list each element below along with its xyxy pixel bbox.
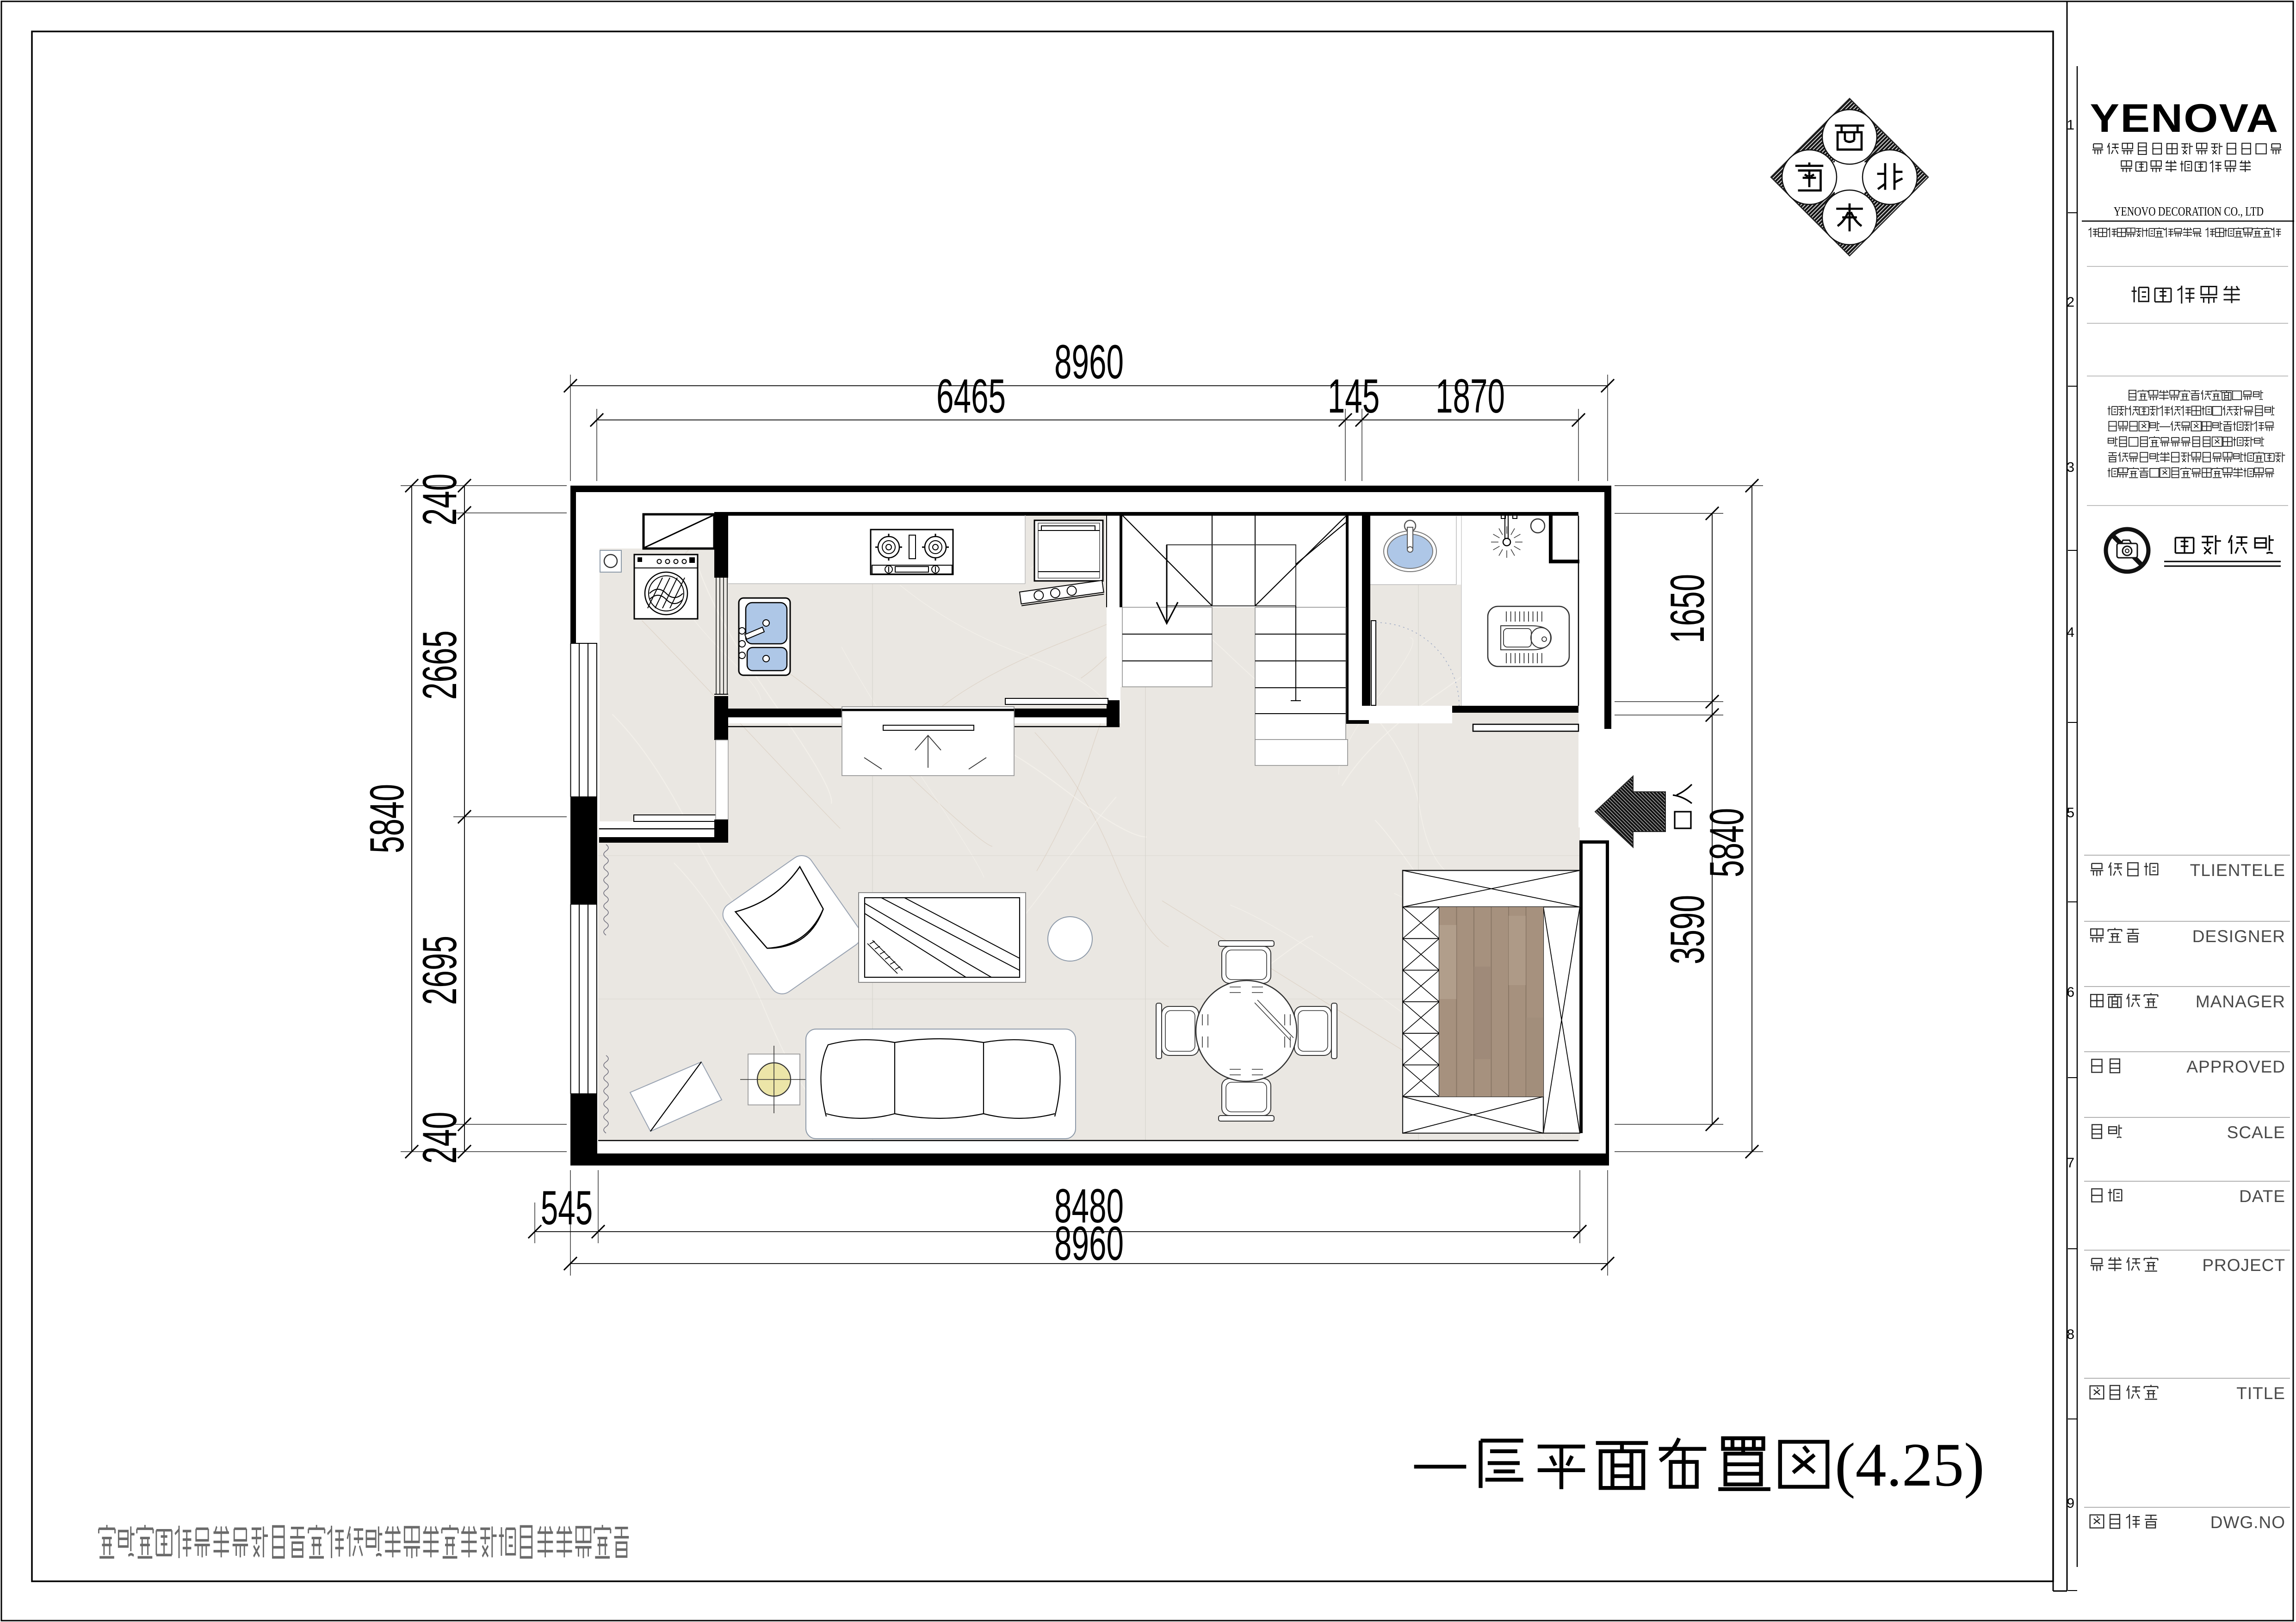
svg-text:6: 6 bbox=[2067, 985, 2074, 1000]
svg-text:PROJECT: PROJECT bbox=[2202, 1256, 2285, 1275]
svg-text:5840: 5840 bbox=[360, 784, 414, 853]
svg-text:5840: 5840 bbox=[1700, 808, 1754, 877]
svg-text:1: 1 bbox=[2067, 117, 2074, 133]
svg-text:240: 240 bbox=[413, 474, 467, 526]
svg-text:(4.25): (4.25) bbox=[1835, 1431, 1985, 1499]
svg-text:6465: 6465 bbox=[936, 370, 1006, 423]
svg-text:2: 2 bbox=[2067, 295, 2074, 310]
svg-text:9: 9 bbox=[2067, 1496, 2074, 1511]
svg-text:8960: 8960 bbox=[1054, 1217, 1124, 1270]
svg-text:5: 5 bbox=[2067, 805, 2074, 820]
svg-text:545: 545 bbox=[541, 1181, 593, 1235]
svg-text:MANAGER: MANAGER bbox=[2196, 992, 2285, 1011]
svg-text:1650: 1650 bbox=[1661, 574, 1714, 643]
svg-text:4: 4 bbox=[2067, 625, 2074, 640]
svg-text:2695: 2695 bbox=[413, 936, 467, 1005]
svg-text:8: 8 bbox=[2067, 1327, 2074, 1342]
svg-text:DATE: DATE bbox=[2239, 1187, 2285, 1206]
svg-text:3: 3 bbox=[2067, 460, 2074, 475]
svg-text:TITLE: TITLE bbox=[2236, 1384, 2285, 1403]
svg-text:145: 145 bbox=[1328, 370, 1380, 423]
svg-text:DWG.NO: DWG.NO bbox=[2210, 1513, 2285, 1532]
svg-text:3590: 3590 bbox=[1661, 895, 1714, 964]
svg-text:DESIGNER: DESIGNER bbox=[2192, 927, 2285, 946]
svg-text:1870: 1870 bbox=[1436, 370, 1505, 423]
svg-text:2665: 2665 bbox=[413, 630, 467, 700]
svg-text:SCALE: SCALE bbox=[2227, 1123, 2285, 1142]
svg-text:7: 7 bbox=[2067, 1155, 2074, 1171]
svg-text:YENOVA: YENOVA bbox=[2090, 96, 2279, 141]
svg-text:240: 240 bbox=[413, 1112, 467, 1164]
svg-text:8960: 8960 bbox=[1054, 335, 1124, 389]
svg-text:.: . bbox=[2199, 227, 2203, 240]
svg-text:YENOVO DECORATION CO., LTD: YENOVO DECORATION CO., LTD bbox=[2114, 204, 2264, 218]
svg-text:TLIENTELE: TLIENTELE bbox=[2190, 861, 2285, 880]
svg-text:APPROVED: APPROVED bbox=[2186, 1057, 2285, 1076]
